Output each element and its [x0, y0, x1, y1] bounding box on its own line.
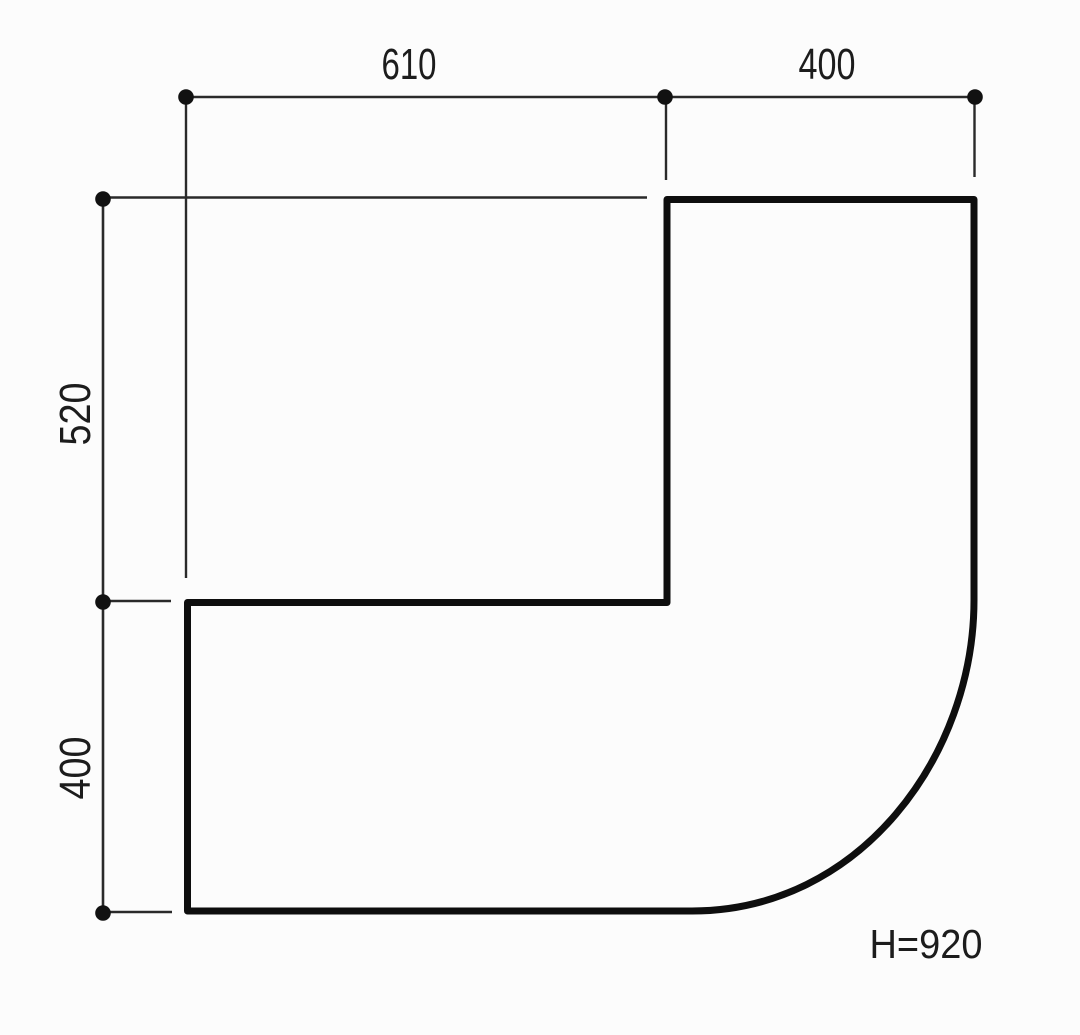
- svg-text:520: 520: [51, 383, 100, 446]
- svg-text:610: 610: [382, 40, 437, 89]
- svg-text:400: 400: [799, 40, 856, 89]
- svg-text:400: 400: [51, 737, 100, 800]
- svg-text:H=920: H=920: [870, 921, 983, 967]
